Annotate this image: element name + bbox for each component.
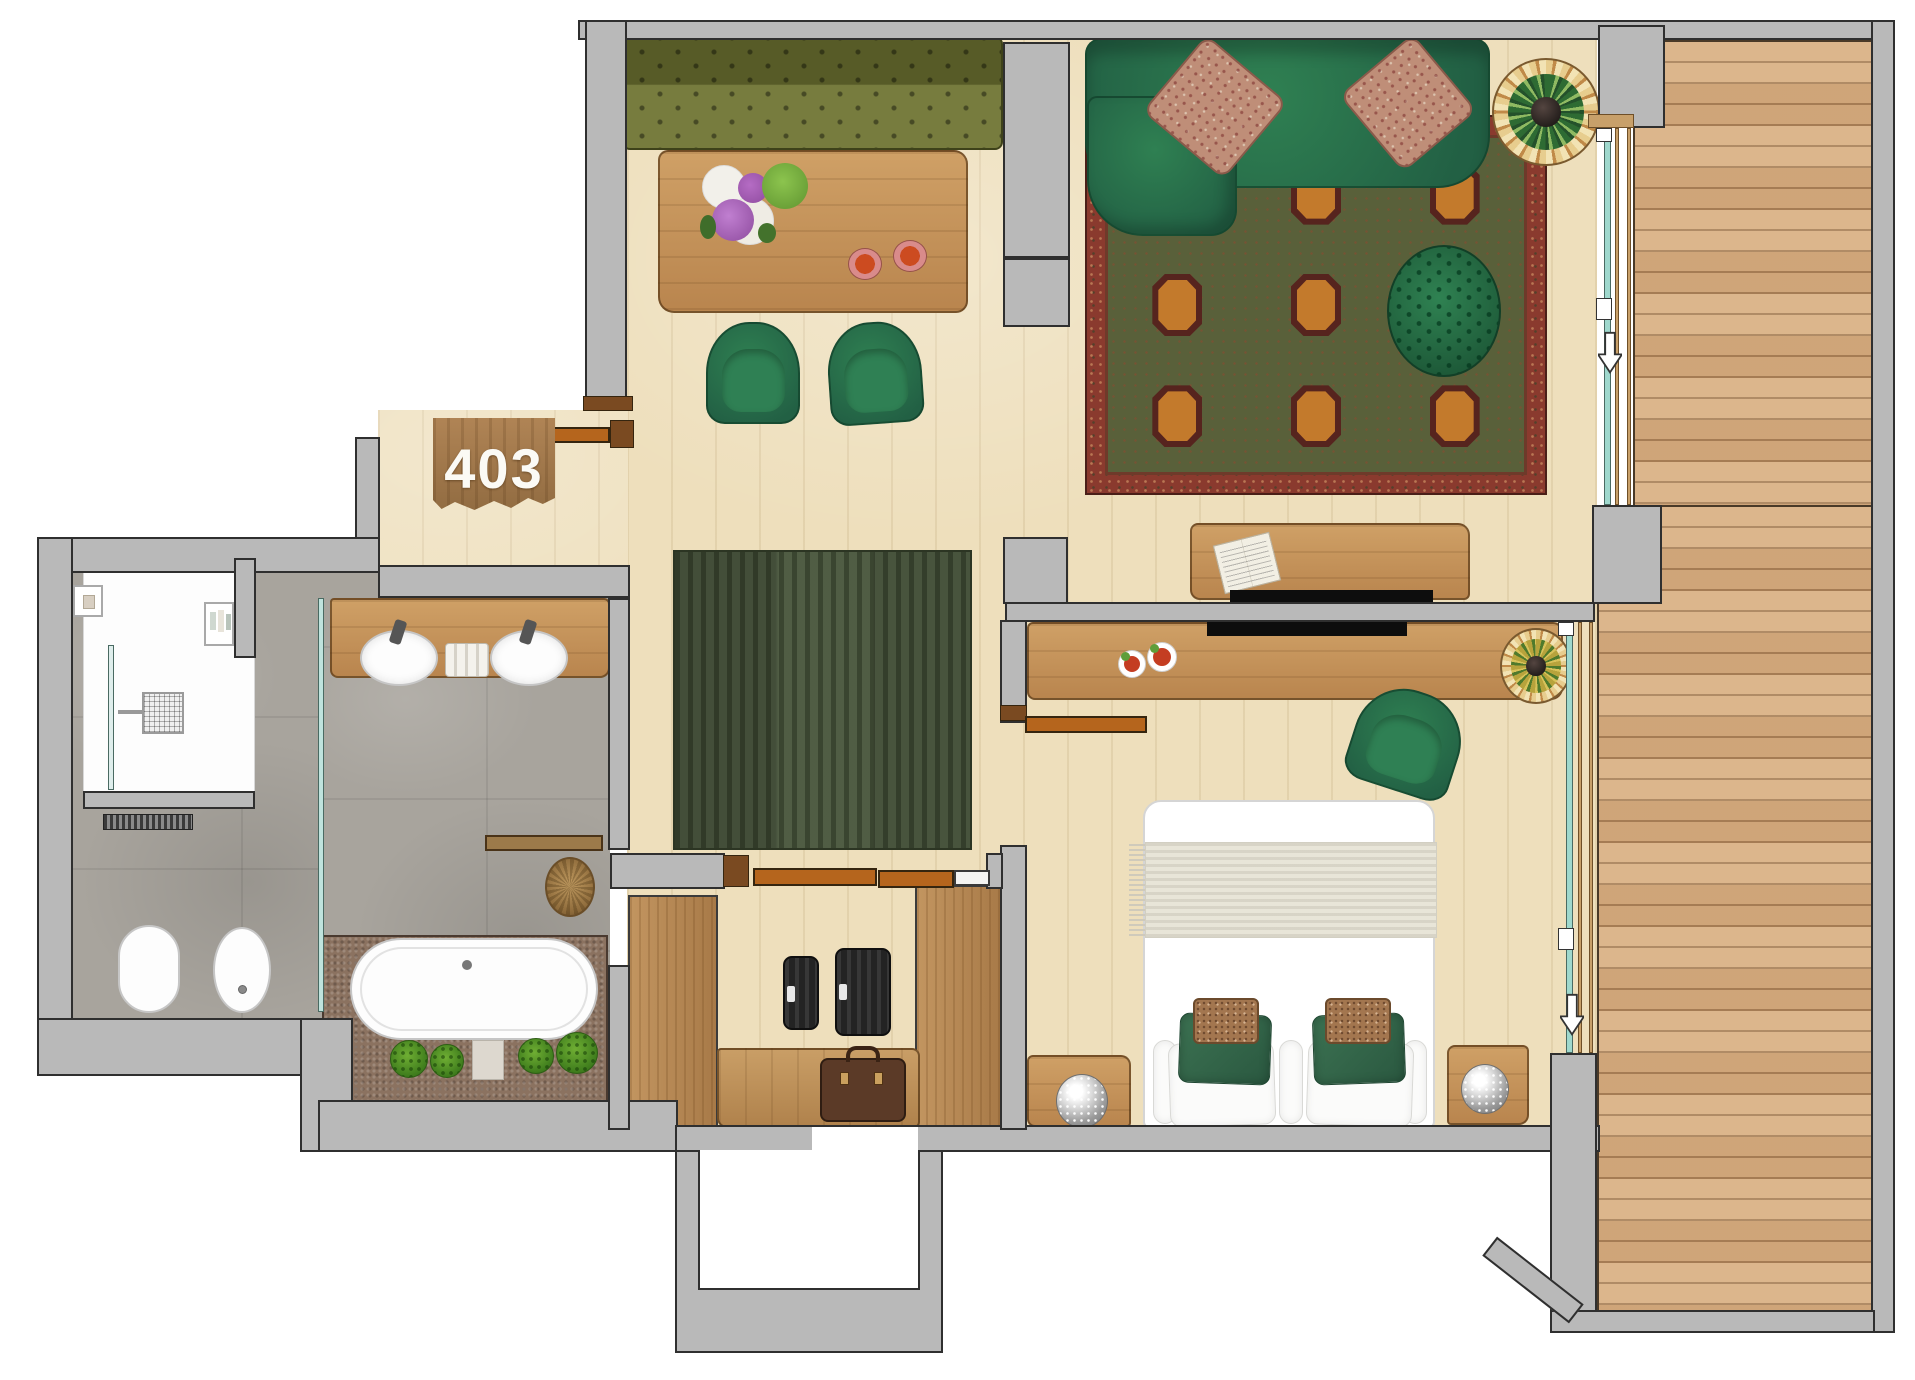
rug-medallion xyxy=(1152,274,1202,336)
living-door-handle xyxy=(1596,128,1612,142)
bedroom-door-handle xyxy=(1558,928,1574,950)
wardrobe-panel-right xyxy=(915,885,1003,1128)
bedroom-right-pillar xyxy=(1550,1053,1597,1317)
dining-pillar-lower xyxy=(1003,258,1070,327)
bidet-drain xyxy=(238,985,247,994)
living-window-frame xyxy=(1615,128,1619,505)
rug-medallion xyxy=(1430,385,1480,447)
olive-tufted-bench xyxy=(622,36,1003,150)
bath-left-wall xyxy=(37,537,73,1050)
throw-fringe xyxy=(1129,844,1145,936)
mid-right-window-pier xyxy=(1592,505,1662,604)
divider-wall-stub xyxy=(1003,537,1068,604)
bath-right-wall-lower xyxy=(608,965,630,1130)
bathroom-glass-partition xyxy=(318,598,324,1012)
rug-medallion xyxy=(1291,385,1341,447)
flower-bouquet xyxy=(700,157,812,255)
tv-bedroom xyxy=(1207,622,1407,636)
bedroom-left-wall-lower xyxy=(1000,845,1027,1130)
wooden-door-leaf-bath xyxy=(485,835,603,851)
bedroom-doorframe xyxy=(1000,705,1027,721)
drink-glass xyxy=(893,240,927,272)
shower-glass xyxy=(108,645,114,790)
sparkle-lamp xyxy=(1056,1074,1108,1128)
balcony-deck-lower xyxy=(1597,505,1873,1313)
bedroom-door-handle xyxy=(1558,622,1574,636)
plant xyxy=(556,1032,598,1074)
green-armchair xyxy=(706,322,800,424)
top-right-pillar xyxy=(1598,25,1665,128)
vanity-top-wall xyxy=(378,565,630,598)
bath-mat xyxy=(472,1040,504,1080)
double-bed xyxy=(1143,800,1435,1128)
patterned-pillow xyxy=(1193,998,1259,1044)
plant xyxy=(518,1038,554,1074)
closet-door-leaf xyxy=(878,870,954,888)
towel-radiator xyxy=(103,814,193,830)
drink-glass xyxy=(848,248,882,280)
bedroom-sliding-glass xyxy=(1566,622,1573,1053)
jute-basket xyxy=(545,857,595,917)
tiffany-table-lamp xyxy=(1500,628,1572,704)
rug-medallion xyxy=(1291,274,1341,336)
shower-niche xyxy=(204,602,234,646)
wardrobe-panel-left xyxy=(628,895,718,1127)
door-swing-arrow xyxy=(1598,330,1622,374)
rug-medallion xyxy=(1152,385,1202,447)
right-wall xyxy=(1871,20,1895,1333)
leather-briefcase xyxy=(820,1058,906,1122)
shower-arm xyxy=(118,710,144,714)
deck-bottom-wall xyxy=(1550,1310,1875,1333)
suitcase-large xyxy=(835,948,891,1036)
bedroom-window-frame xyxy=(1589,622,1593,1053)
living-left-wall xyxy=(585,20,627,410)
bathtub-drain xyxy=(462,960,472,970)
rain-shower-head xyxy=(142,692,184,734)
wall-niche xyxy=(73,585,103,617)
divider-wall xyxy=(1005,602,1595,622)
hallway-green-rug xyxy=(673,550,972,850)
shower-right-wall xyxy=(234,558,256,658)
balcony-deck-upper xyxy=(1633,40,1873,507)
window-sill xyxy=(1588,114,1634,128)
shower-bottom-wall xyxy=(83,791,255,809)
entry-doorframe-right xyxy=(610,420,634,448)
bath-bottom-left-wall xyxy=(37,1018,322,1076)
plate-of-food xyxy=(1118,650,1146,678)
bedroom-window-frame xyxy=(1578,622,1582,1053)
throw-blanket xyxy=(1145,842,1437,938)
living-left-wall-doorframe xyxy=(583,396,633,411)
tiffany-floor-lamp xyxy=(1492,58,1600,166)
entry-protrusion-shaft xyxy=(698,1150,920,1290)
bottom-wall-opening xyxy=(812,1127,918,1152)
living-window-frame xyxy=(1627,128,1631,505)
towels xyxy=(445,643,489,677)
plant xyxy=(430,1044,464,1078)
dining-pillar-upper xyxy=(1003,42,1070,258)
top-wall xyxy=(578,20,1895,40)
bedroom-door-leaf xyxy=(1025,716,1147,733)
patterned-pillow xyxy=(1325,998,1391,1044)
floor-plan: 403 xyxy=(0,0,1915,1380)
closet-door-leaf-white xyxy=(954,870,990,886)
closet-door-hinge xyxy=(723,855,749,887)
room-number-label: 403 xyxy=(444,436,543,501)
bed-roll-pillow xyxy=(1279,1040,1303,1124)
living-door-handle xyxy=(1596,298,1612,320)
bath-top-wall xyxy=(37,537,380,573)
closet-top-wall xyxy=(610,853,725,889)
closet-door-leaf xyxy=(753,868,877,886)
bidet xyxy=(213,927,271,1013)
bathtub-inner xyxy=(360,947,588,1031)
plant xyxy=(390,1040,428,1078)
bath-right-wall-upper xyxy=(608,598,630,850)
door-swing-arrow xyxy=(1560,992,1584,1036)
round-tufted-ottoman xyxy=(1387,245,1501,377)
toilet xyxy=(118,925,180,1013)
suitcase-small xyxy=(783,956,819,1030)
plate-of-food xyxy=(1147,642,1177,672)
sparkle-lamp xyxy=(1461,1064,1509,1114)
